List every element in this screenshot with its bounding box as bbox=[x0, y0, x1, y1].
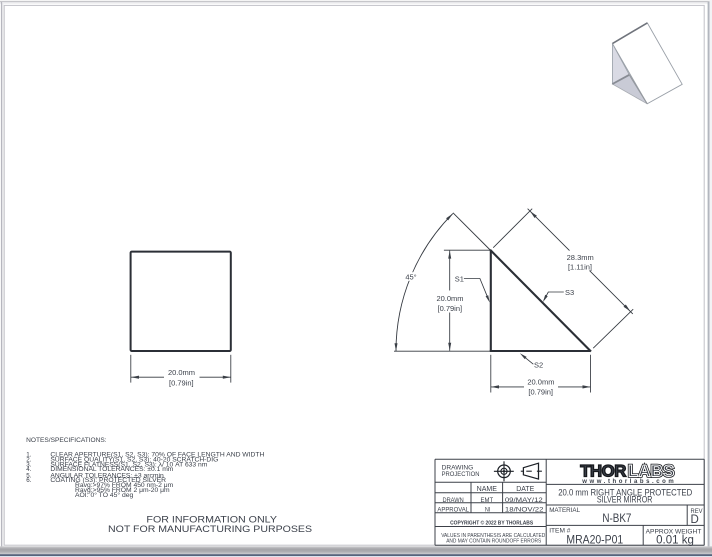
svg-text:NAME: NAME bbox=[477, 484, 497, 493]
svg-text:DATE: DATE bbox=[516, 484, 534, 493]
svg-text:20.0mm: 20.0mm bbox=[168, 368, 195, 377]
svg-text:NOT FOR MANUFACTURING PURPOSES: NOT FOR MANUFACTURING PURPOSES bbox=[108, 524, 312, 534]
svg-text:[1.11in]: [1.11in] bbox=[568, 263, 592, 272]
svg-text:FOR INFORMATION ONLY: FOR INFORMATION ONLY bbox=[146, 515, 277, 525]
svg-text:NI: NI bbox=[485, 507, 491, 514]
svg-text:18/NOV/22: 18/NOV/22 bbox=[505, 507, 544, 514]
svg-text:PROJECTION: PROJECTION bbox=[442, 471, 480, 478]
svg-text:AOI: 0° TO 45° deg: AOI: 0° TO 45° deg bbox=[75, 492, 134, 499]
svg-text:EMT: EMT bbox=[481, 497, 494, 504]
svg-text:20.0mm: 20.0mm bbox=[436, 294, 463, 303]
svg-text:NOTES/SPECIFICATIONS:: NOTES/SPECIFICATIONS: bbox=[26, 437, 107, 444]
svg-text:45°: 45° bbox=[405, 273, 416, 282]
svg-text:LABS: LABS bbox=[628, 461, 674, 480]
svg-text:[0.79in]: [0.79in] bbox=[528, 388, 553, 397]
svg-text:S2: S2 bbox=[534, 360, 543, 369]
svg-text:6.: 6. bbox=[26, 477, 31, 484]
svg-text:APPROVAL: APPROVAL bbox=[437, 507, 469, 514]
svg-text:[0.79in]: [0.79in] bbox=[437, 304, 462, 313]
svg-text:[0.79in]: [0.79in] bbox=[169, 379, 194, 388]
svg-text:28.3mm: 28.3mm bbox=[567, 253, 594, 262]
svg-text:MATERIAL: MATERIAL bbox=[549, 507, 580, 514]
svg-text:09/MAY/12: 09/MAY/12 bbox=[505, 497, 543, 504]
svg-text:D: D bbox=[691, 514, 699, 526]
svg-text:COPYRIGHT © 2022 BY THORLABS: COPYRIGHT © 2022 BY THORLABS bbox=[450, 519, 533, 526]
svg-text:S3: S3 bbox=[565, 288, 574, 297]
svg-text:THOR: THOR bbox=[580, 461, 626, 480]
svg-text:AND MAY CONTAIN ROUNDOFF ERROR: AND MAY CONTAIN ROUNDOFF ERRORS bbox=[446, 538, 541, 544]
svg-text:MRA20-P01: MRA20-P01 bbox=[566, 534, 623, 546]
svg-text:S1: S1 bbox=[455, 275, 464, 284]
svg-text:www.thorlabs.com: www.thorlabs.com bbox=[581, 479, 676, 485]
svg-text:20.0mm: 20.0mm bbox=[527, 378, 554, 387]
svg-text:ITEM #: ITEM # bbox=[549, 527, 571, 534]
svg-text:0.01 kg: 0.01 kg bbox=[656, 534, 694, 546]
svg-text:N-BK7: N-BK7 bbox=[602, 512, 631, 525]
svg-text:SILVER MIRROR: SILVER MIRROR bbox=[597, 494, 653, 505]
svg-text:DRAWN: DRAWN bbox=[443, 497, 464, 504]
